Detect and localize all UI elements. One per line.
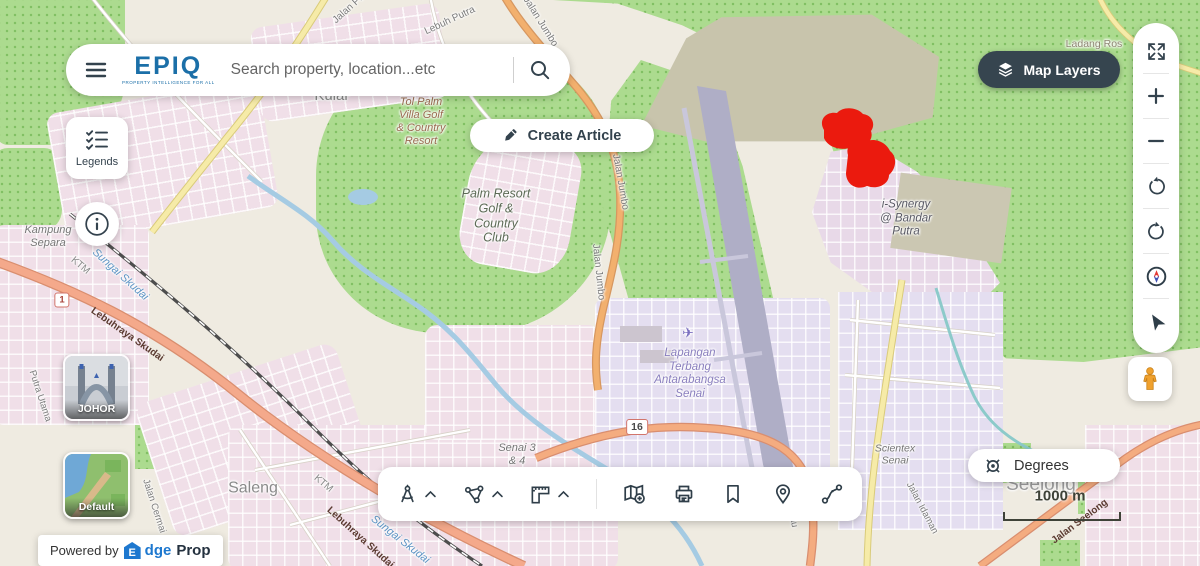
legends-button[interactable]: Legends — [66, 117, 128, 179]
info-button[interactable] — [75, 202, 119, 246]
map-layers-label: Map Layers — [1023, 62, 1100, 78]
map-app: Palm Resort Golf & Country Club Tol Palm… — [0, 0, 1200, 566]
edgeprop-brand-text: dge — [145, 542, 172, 559]
measure-distance-tool[interactable] — [529, 483, 570, 506]
pencil-icon — [503, 128, 519, 144]
printer-icon — [672, 482, 696, 506]
menu-button[interactable] — [84, 58, 108, 82]
map-add-icon — [622, 482, 646, 506]
locate-button[interactable] — [1133, 299, 1179, 343]
drafting-compass-icon — [396, 483, 419, 506]
polygon-nodes-icon — [463, 483, 486, 506]
map-layers-button[interactable]: Map Layers — [978, 51, 1120, 88]
powered-by-text: Powered by — [50, 543, 119, 558]
zoom-in-button[interactable] — [1133, 74, 1179, 118]
epiq-logo: EPIQ PROPERTY INTELLIGENCE FOR ALL — [122, 54, 215, 86]
edgeprop-brand-text: Prop — [176, 542, 210, 559]
compass-icon — [1145, 265, 1168, 288]
measure-angle-tool[interactable] — [396, 483, 437, 506]
scale-bar — [1003, 512, 1121, 521]
ruler-icon — [529, 483, 552, 506]
chevron-up-icon — [424, 489, 437, 499]
search-icon — [528, 58, 552, 82]
divider — [513, 57, 514, 83]
legends-label: Legends — [76, 156, 118, 168]
rotate-cw-button[interactable] — [1133, 209, 1179, 253]
layers-icon — [997, 61, 1014, 78]
basemap-johor-label: JOHOR — [65, 400, 128, 419]
hamburger-icon — [84, 58, 108, 82]
location-pin-icon — [771, 482, 795, 506]
bookmark-tool[interactable] — [721, 482, 745, 506]
map-controls-toolbar — [1133, 23, 1179, 353]
create-article-button[interactable]: Create Article — [470, 119, 654, 152]
location-pin-tool[interactable] — [771, 482, 795, 506]
route-icon — [820, 482, 844, 506]
info-icon — [84, 211, 110, 237]
basemap-default[interactable]: Default — [63, 452, 130, 519]
rotate-ccw-icon — [1146, 176, 1167, 197]
rotate-cw-icon — [1146, 221, 1167, 242]
rotate-ccw-button[interactable] — [1133, 164, 1179, 208]
navigation-arrow-icon — [1146, 311, 1167, 332]
search-bar: EPIQ PROPERTY INTELLIGENCE FOR ALL — [66, 44, 570, 96]
drawing-toolbar — [378, 467, 862, 521]
degrees-selector[interactable]: Degrees — [968, 449, 1120, 482]
route-shield-16: 16 — [626, 419, 648, 435]
zoom-out-button[interactable] — [1133, 119, 1179, 163]
streetview-pegman-button[interactable] — [1128, 357, 1172, 401]
divider — [596, 479, 597, 509]
expand-icon — [1146, 41, 1167, 62]
basemap-default-label: Default — [65, 498, 128, 517]
route-shield-1: 1 — [54, 293, 69, 308]
compass-button[interactable] — [1133, 254, 1179, 298]
bookmark-icon — [721, 482, 745, 506]
basemap-johor[interactable]: JOHOR — [63, 354, 130, 421]
print-tool[interactable] — [672, 482, 696, 506]
create-article-label: Create Article — [528, 128, 622, 144]
scale-label: 1000 m — [1035, 488, 1086, 505]
search-input[interactable] — [229, 60, 499, 80]
plus-icon — [1145, 85, 1167, 107]
attribution-badge[interactable]: Powered by E dge Prop — [38, 535, 223, 566]
minus-icon — [1145, 130, 1167, 152]
epiq-logo-text: EPIQ — [134, 54, 202, 79]
checklist-icon — [84, 128, 110, 152]
chevron-up-icon — [491, 489, 504, 499]
epiq-logo-tagline: PROPERTY INTELLIGENCE FOR ALL — [122, 81, 215, 86]
degrees-label: Degrees — [1014, 458, 1069, 474]
draw-polygon-tool[interactable] — [463, 483, 504, 506]
search-button[interactable] — [528, 58, 552, 82]
crosshair-icon — [982, 455, 1004, 477]
pegman-icon — [1138, 366, 1162, 392]
route-tool[interactable] — [820, 482, 844, 506]
fullscreen-button[interactable] — [1133, 29, 1179, 73]
highlight-parcel-red — [846, 140, 895, 188]
chevron-up-icon — [557, 489, 570, 499]
add-map-tool[interactable] — [622, 482, 646, 506]
edgeprop-house-icon: E — [124, 542, 141, 559]
